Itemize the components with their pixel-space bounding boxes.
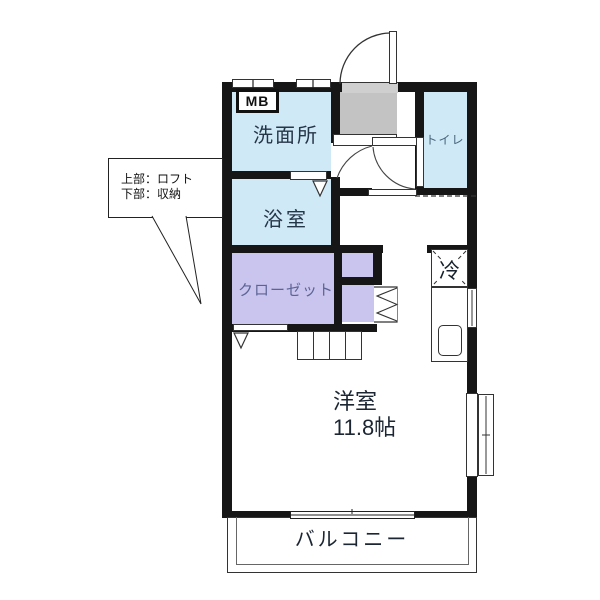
meter-box-label: MB (246, 93, 270, 109)
entrance-door-arc (340, 33, 390, 84)
main-room-area: 11.8帖 (333, 415, 396, 441)
refrigerator-label: 冷 (431, 255, 468, 285)
hall-door-leaf (372, 137, 417, 146)
callout-tail-fill (152, 216, 201, 304)
entrance-door-leaf (389, 31, 397, 84)
closet-window (233, 324, 288, 331)
wall-right-mid (467, 328, 477, 393)
stair-step (297, 331, 314, 360)
floor-plan: MB 洗面所 浴室 トイレ クローゼット 冷 洋室 11.8帖 バルコニー 上部… (0, 0, 600, 600)
balcony-sliding-window (290, 511, 415, 519)
washroom-door-arc (337, 146, 372, 178)
folding-door-frame (374, 287, 397, 322)
storage-upper (342, 253, 373, 277)
callout-text: 上部：ロフト 下部：収納 (121, 172, 193, 202)
main-window-opening (466, 393, 478, 477)
wall-bathroom-closet (222, 245, 383, 253)
top-window-right (296, 79, 331, 88)
kitchen-window (467, 288, 477, 328)
wall-top-right (398, 82, 477, 92)
balcony-label: バルコニー (252, 523, 452, 552)
wall-left (222, 82, 232, 518)
wall-toilet-bottom (415, 188, 468, 195)
stair-step (329, 331, 346, 360)
hall-threshold (368, 189, 417, 196)
washroom-door-opening (331, 143, 340, 177)
washroom-label: 洗面所 (232, 119, 340, 148)
closet-label: クローゼット (232, 279, 340, 300)
main-room-label: 洋室 11.8帖 (333, 389, 396, 441)
toilet-label: トイレ (421, 131, 469, 148)
stair-step (313, 331, 330, 360)
door-marker-closet (234, 333, 248, 348)
main-window-frame (478, 394, 494, 476)
kitchen-sink (438, 325, 462, 356)
stair-step (345, 331, 362, 360)
callout-line-2: 下部：収納 (121, 187, 193, 202)
wall-right-upper (467, 92, 477, 288)
callout-tail-lines (152, 216, 201, 304)
bathroom-label: 浴室 (232, 203, 340, 232)
folding-door-zigzag (377, 288, 397, 321)
wall-storage-right (373, 253, 382, 285)
callout-line-1: 上部：ロフト (121, 172, 193, 187)
entry-genkan (340, 92, 397, 134)
meter-box: MB (236, 89, 279, 113)
storage-lower (342, 285, 374, 322)
main-room-name: 洋室 (333, 389, 396, 415)
wall-hall-bottom (331, 188, 372, 196)
refrigerator-kanji: 冷 (438, 260, 461, 283)
top-window-left (232, 79, 274, 88)
washroom-counter (290, 171, 327, 180)
hall-door-arc (373, 147, 415, 189)
